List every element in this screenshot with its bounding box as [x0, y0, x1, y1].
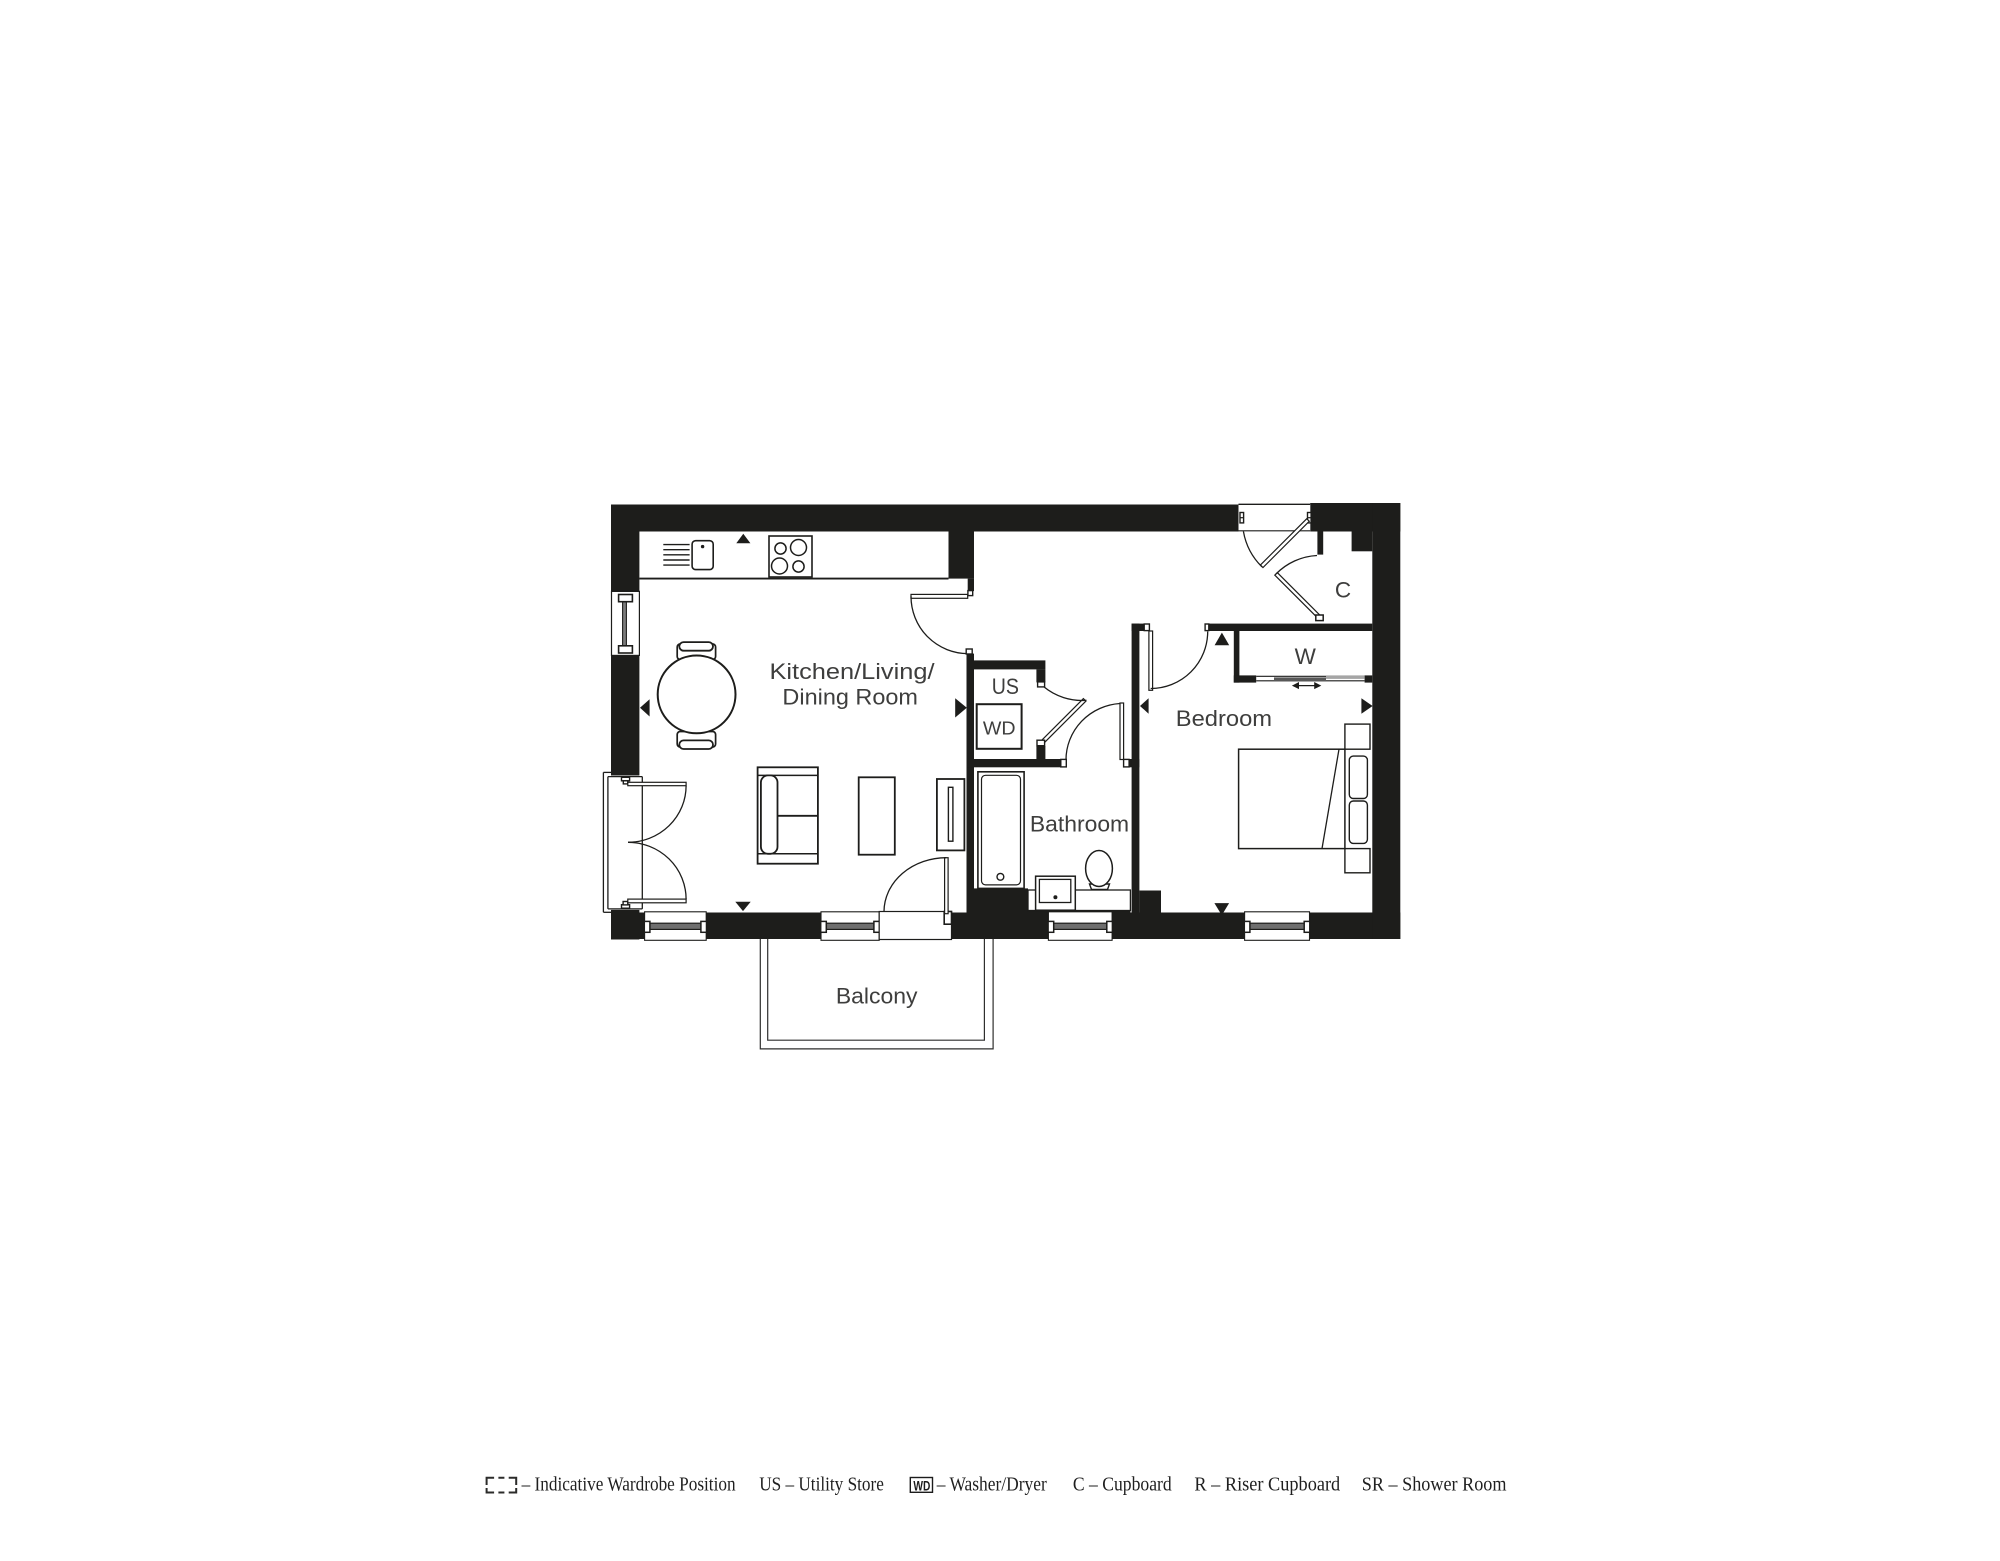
- svg-text:– Washer/Dryer: – Washer/Dryer: [936, 1474, 1047, 1496]
- svg-text:Dining Room: Dining Room: [782, 685, 918, 710]
- svg-text:C: C: [1335, 578, 1351, 603]
- svg-text:Bedroom: Bedroom: [1176, 706, 1272, 731]
- svg-text:C – Cupboard: C – Cupboard: [1073, 1474, 1172, 1496]
- svg-text:US – Utility Store: US – Utility Store: [759, 1474, 884, 1496]
- svg-text:– Indicative Wardrobe Position: – Indicative Wardrobe Position: [521, 1474, 736, 1496]
- svg-text:R – Riser Cupboard: R – Riser Cupboard: [1194, 1474, 1340, 1496]
- svg-text:US: US: [992, 674, 1019, 699]
- svg-text:W: W: [1295, 644, 1317, 669]
- svg-text:Bathroom: Bathroom: [1030, 811, 1129, 836]
- svg-text:WD: WD: [913, 1478, 930, 1493]
- svg-text:WD: WD: [983, 717, 1016, 738]
- svg-text:Kitchen/Living/: Kitchen/Living/: [770, 659, 936, 684]
- svg-text:Balcony: Balcony: [836, 984, 918, 1009]
- svg-text:SR – Shower Room: SR – Shower Room: [1362, 1474, 1507, 1496]
